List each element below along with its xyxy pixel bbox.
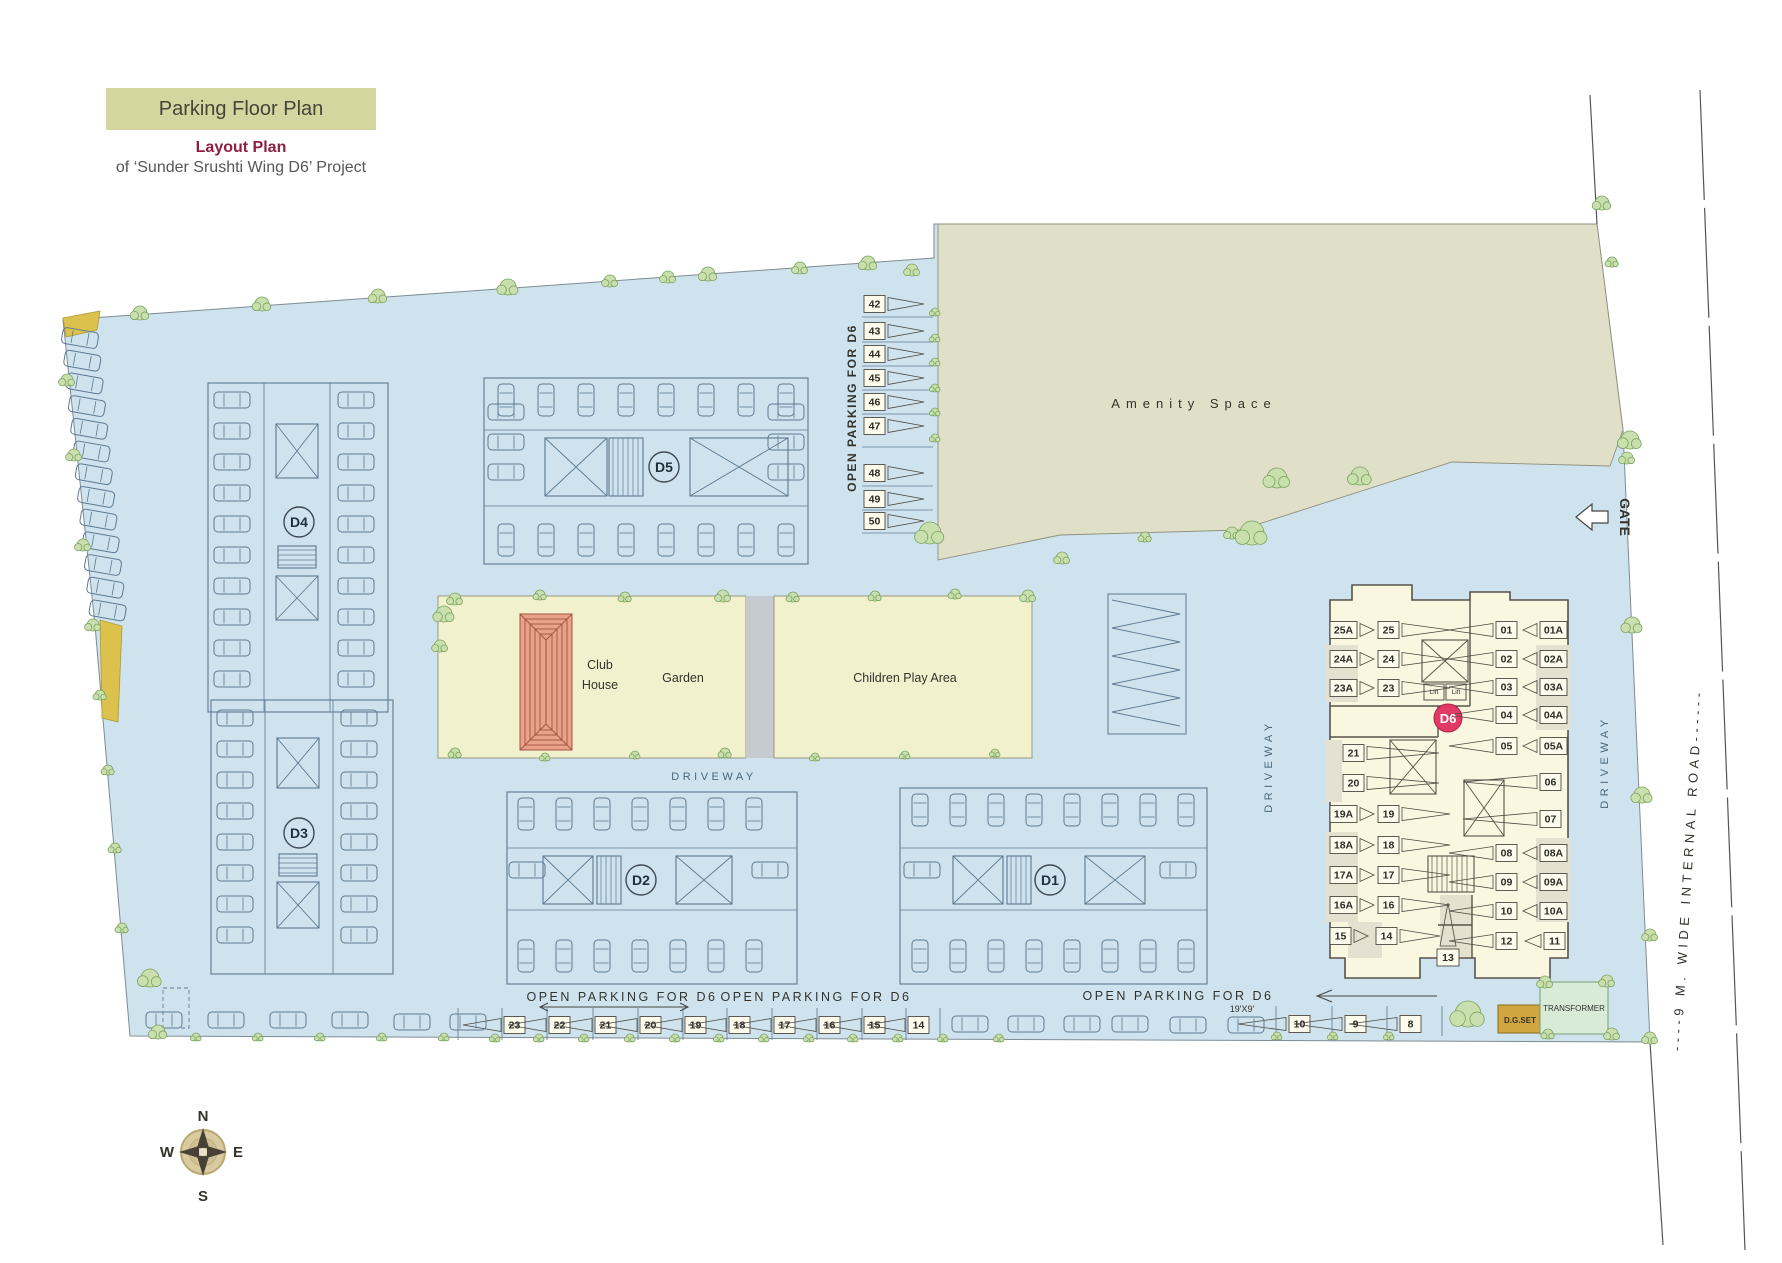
compass-west-label: W (160, 1144, 175, 1161)
parking-spot-number: 18A (1334, 840, 1354, 852)
parking-spot-number: 14 (1381, 931, 1393, 943)
compass-south-label: S (198, 1188, 208, 1205)
parking-spot-number: 03A (1544, 682, 1564, 694)
spot-dimension-label: 19'X9' (1230, 1004, 1255, 1014)
parking-spot-number: 21 (1348, 748, 1360, 760)
tree-icon (1592, 196, 1611, 210)
corner-wedge (100, 620, 122, 722)
compass-rose-icon (179, 1128, 227, 1176)
road-line (1650, 1042, 1663, 1245)
parking-spot-number: 11 (1549, 936, 1560, 948)
tree-icon (497, 279, 518, 295)
tree-icon (792, 262, 808, 274)
compass-east-label: E (233, 1144, 243, 1161)
parking-floor-plan: Parking Floor Plan Layout Plan of ‘Sunde… (0, 0, 1782, 1263)
parking-spot-number: 15 (1335, 931, 1347, 943)
club-house-label-line2: House (582, 678, 618, 692)
parking-spot-number: 25 (1383, 625, 1395, 637)
garden-label: Garden (662, 671, 704, 685)
parking-spot-number: 09A (1544, 877, 1564, 889)
building-d4-badge: D4 (290, 514, 308, 530)
dg-set-label: D.G.SET (1504, 1016, 1536, 1025)
amenity-space-label: Amenity Space (1111, 396, 1276, 411)
open-parking-bottom-label-3: OPEN PARKING FOR D6 (1082, 989, 1273, 1003)
lift-label-2: Lift (1452, 689, 1461, 696)
club-house-label-line1: Club (587, 658, 613, 672)
parking-spot-number: 01 (1501, 625, 1513, 637)
club-house-roof (520, 614, 572, 750)
parking-spot-number: 49 (869, 494, 881, 506)
parking-spot-number: 16 (1383, 900, 1395, 912)
parking-spot-number: 12 (1501, 936, 1513, 948)
parking-spot-number: 20 (1348, 778, 1360, 790)
parking-spot-number: 48 (869, 468, 881, 480)
building-d3-badge: D3 (290, 825, 308, 841)
tree-icon (252, 297, 271, 311)
open-parking-side-label: OPEN PARKING FOR D6 (845, 324, 859, 492)
parking-spot-number: 46 (869, 397, 881, 409)
transformer-label: TRANSFORMER (1543, 1004, 1605, 1013)
parking-spot-number: 01A (1544, 625, 1564, 637)
road-line (1700, 90, 1745, 1250)
open-parking-bottom-label-2: OPEN PARKING FOR D6 (720, 990, 911, 1004)
parking-spot-number: 02A (1544, 654, 1564, 666)
parking-spot-number: 06 (1545, 777, 1557, 789)
parking-spot-number: 04 (1501, 710, 1513, 722)
parking-spot-number: 17 (1383, 870, 1395, 882)
parking-spot-number: 08 (1501, 848, 1513, 860)
parking-spot-number: 05 (1501, 741, 1513, 753)
parking-spot-number: 02 (1501, 654, 1513, 666)
parking-spot-number: 25A (1334, 625, 1354, 637)
parking-spot-number: 23A (1334, 683, 1354, 695)
parking-spot-number: 23 (1383, 683, 1395, 695)
parking-spot-number: 10 (1501, 906, 1513, 918)
building-d2-badge: D2 (632, 872, 650, 888)
parking-spot-number: 24 (1383, 654, 1395, 666)
parking-spot-number: 10A (1544, 906, 1564, 918)
building-d1-badge: D1 (1041, 872, 1059, 888)
tree-icon (368, 289, 387, 303)
garden-path (746, 596, 774, 758)
driveway-label-center: DRIVEWAY (1263, 719, 1275, 812)
parking-spot-number: 19 (1383, 809, 1395, 821)
internal-road-label: ----9 M. WIDE INTERNAL ROAD------ (1669, 688, 1706, 1051)
gate-label: GATE (1617, 498, 1633, 536)
parking-spot-number: 08A (1544, 848, 1564, 860)
tree-icon (1605, 257, 1618, 267)
parking-spot-number: 04A (1544, 710, 1564, 722)
driveway-label-horizontal: DRIVEWAY (671, 771, 756, 783)
site-plan-canvas: 25A2524A2423A23212019A1918A1817A1716A161… (0, 0, 1782, 1263)
open-parking-bottom-label-1: OPEN PARKING FOR D6 (526, 990, 717, 1004)
parking-spot-number: 05A (1544, 741, 1564, 753)
shaded-bay (1326, 740, 1342, 802)
parking-spot-number: 42 (869, 299, 881, 311)
tree-icon (602, 275, 618, 287)
parking-spot-number: 03 (1501, 682, 1513, 694)
lift-label-1: Lift (1430, 689, 1439, 696)
parking-spot-number: 16A (1334, 900, 1354, 912)
compass-north-label: N (198, 1108, 209, 1125)
parking-spot-number: 44 (869, 349, 881, 361)
tree-icon (660, 271, 676, 283)
parking-spot-number: 8 (1408, 1019, 1414, 1031)
building-d6-badge: D6 (1440, 711, 1457, 726)
parking-spot-number: 18 (1383, 840, 1395, 852)
parking-spot-number: 19A (1334, 809, 1354, 821)
children-play-area-label: Children Play Area (853, 671, 957, 685)
parking-spot-number: 13 (1442, 952, 1454, 964)
parking-spot-number: 45 (869, 373, 881, 385)
driveway-label-east: DRIVEWAY (1599, 715, 1611, 808)
parking-spot-number: 07 (1545, 814, 1557, 826)
parking-spot-number: 17A (1334, 870, 1354, 882)
parking-spot-number: 14 (913, 1020, 925, 1032)
parking-spot-number: 47 (869, 421, 881, 433)
tree-icon (698, 267, 717, 281)
parking-spot-number: 43 (869, 326, 881, 338)
tree-icon (858, 256, 877, 270)
parking-spot-number: 09 (1501, 877, 1513, 889)
parking-spot-number: 24A (1334, 654, 1354, 666)
building-d5-badge: D5 (655, 459, 673, 475)
parking-spot-number: 50 (869, 516, 881, 528)
tree-icon (130, 306, 149, 320)
